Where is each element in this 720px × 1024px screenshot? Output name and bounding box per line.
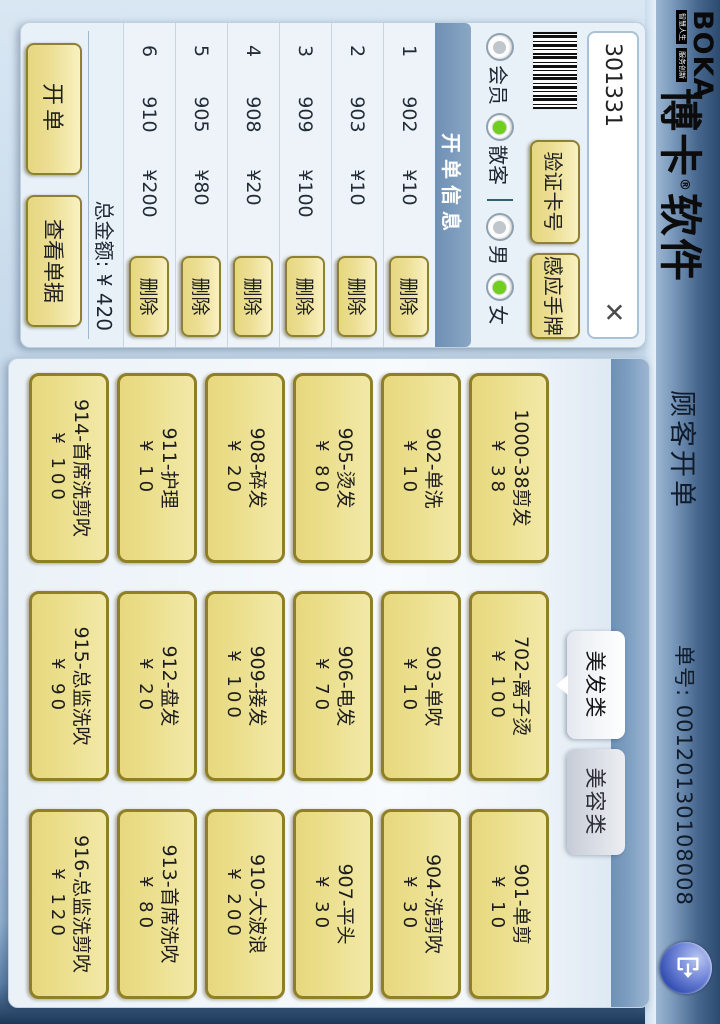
item-price: ¥200	[139, 169, 161, 256]
item-code: 909	[295, 96, 317, 169]
item-index: 4	[243, 45, 265, 96]
delete-item-button[interactable]: 删除	[390, 256, 430, 337]
service-button[interactable]: 1000-38剪发¥ 38	[469, 373, 549, 563]
delete-item-button[interactable]: 删除	[338, 256, 378, 337]
item-price: ¥10	[347, 169, 369, 256]
service-button[interactable]: 907-平头¥ 30	[293, 809, 373, 999]
service-button[interactable]: 912-盘发¥ 20	[117, 591, 197, 781]
item-code: 908	[243, 96, 265, 169]
exit-button[interactable]	[660, 942, 712, 994]
services-panel: 美发类 美容类 1000-38剪发¥ 38 702-离子烫¥ 100 901-单…	[8, 358, 650, 1008]
logo-tagline-right: 服务创新	[676, 48, 687, 82]
service-button[interactable]: 913-首席洗吹¥ 80	[117, 809, 197, 999]
bill-item-row: 6 910 ¥200 删除	[123, 23, 175, 347]
open-bill-button[interactable]: 开单	[26, 43, 82, 175]
bill-item-row: 5 905 ¥80 删除	[175, 23, 227, 347]
service-button[interactable]: 702-离子烫¥ 100	[469, 591, 549, 781]
bill-item-row: 2 903 ¥10 删除	[331, 23, 383, 347]
radio-female-circle[interactable]	[486, 273, 514, 301]
item-code: 905	[191, 96, 213, 169]
delete-item-button[interactable]: 删除	[286, 256, 326, 337]
item-price: ¥80	[191, 169, 213, 256]
radio-male[interactable]: 男	[486, 213, 515, 265]
item-index: 3	[295, 45, 317, 96]
logo-tagline-left: 智慧人生	[676, 10, 687, 44]
item-code: 902	[399, 96, 421, 169]
sense-handtag-button[interactable]: 感应手牌	[530, 253, 580, 339]
brand-title: 博卡®软件	[652, 88, 714, 283]
total-amount: 总金额: ¥ 420	[91, 23, 121, 331]
radio-male-circle[interactable]	[486, 213, 514, 241]
item-index: 1	[399, 45, 421, 96]
tab-beauty-category[interactable]: 美容类	[567, 749, 625, 855]
radio-member[interactable]: 会员	[486, 33, 515, 105]
service-button[interactable]: 904-洗剪吹¥ 30	[381, 809, 461, 999]
card-number-value: 301331	[601, 43, 626, 297]
verify-card-button[interactable]: 验证卡号	[530, 140, 580, 244]
item-price: ¥100	[295, 169, 317, 256]
item-price: ¥20	[243, 169, 265, 256]
radio-female[interactable]: 女	[486, 273, 515, 325]
radio-member-circle[interactable]	[486, 33, 514, 61]
service-button[interactable]: 902-单洗¥ 10	[381, 373, 461, 563]
service-button[interactable]: 903-单吹¥ 10	[381, 591, 461, 781]
delete-item-button[interactable]: 删除	[234, 256, 274, 337]
service-button[interactable]: 911-护理¥ 10	[117, 373, 197, 563]
app-root: BOKA 智慧人生 服务创新 博卡®软件 顾客开单 单号: 0012013010…	[0, 0, 720, 1024]
bill-item-row: 1 902 ¥10 删除	[383, 23, 435, 347]
service-button[interactable]: 901-单剪¥ 10	[469, 809, 549, 999]
service-button[interactable]: 915-总监洗吹¥ 90	[29, 591, 109, 781]
order-number: 单号: 00120130108008	[670, 645, 700, 906]
title-bar: BOKA 智慧人生 服务创新 博卡®软件 顾客开单 单号: 0012013010…	[656, 0, 720, 1024]
bill-item-list: 1 902 ¥10 删除 2 903 ¥10 删除 3 909 ¥100 删除 …	[123, 23, 435, 347]
exit-door-icon	[670, 954, 702, 982]
service-button[interactable]: 916-总监洗剪吹¥ 120	[29, 809, 109, 999]
item-code: 910	[139, 96, 161, 169]
page-title: 顾客开单	[665, 390, 704, 510]
service-button-grid: 1000-38剪发¥ 38 702-离子烫¥ 100 901-单剪¥ 10 90…	[13, 373, 549, 1003]
service-button[interactable]: 905-烫发¥ 80	[293, 373, 373, 563]
barcode-icon	[532, 31, 578, 110]
item-price: ¥10	[399, 169, 421, 256]
registered-mark: ®	[676, 178, 691, 193]
radio-walkin[interactable]: 散客	[486, 113, 515, 185]
panel-divider	[88, 31, 89, 339]
card-number-input[interactable]: 301331 ✕	[587, 31, 639, 339]
bill-item-row: 3 909 ¥100 删除	[279, 23, 331, 347]
billing-panel: 301331 ✕ 验证卡号 感应手牌 会员 散客 男 女	[20, 22, 646, 348]
bill-info-header: 开单信息	[435, 23, 471, 347]
service-button[interactable]: 909-接发¥ 100	[205, 591, 285, 781]
service-button[interactable]: 906-电发¥ 70	[293, 591, 373, 781]
radio-group-divider	[487, 199, 513, 201]
service-button[interactable]: 914-首席洗剪吹¥ 100	[29, 373, 109, 563]
clear-input-icon[interactable]: ✕	[598, 297, 628, 327]
item-index: 6	[139, 45, 161, 96]
delete-item-button[interactable]: 删除	[130, 256, 170, 337]
view-bills-button[interactable]: 查看单据	[26, 195, 82, 327]
item-index: 5	[191, 45, 213, 96]
service-button[interactable]: 908-碎发¥ 20	[205, 373, 285, 563]
item-code: 903	[347, 96, 369, 169]
delete-item-button[interactable]: 删除	[182, 256, 222, 337]
item-index: 2	[347, 45, 369, 96]
radio-walkin-circle[interactable]	[486, 113, 514, 141]
tab-hair-category[interactable]: 美发类	[567, 631, 625, 739]
service-button[interactable]: 910-大波浪¥ 200	[205, 809, 285, 999]
bill-item-row: 4 908 ¥20 删除	[227, 23, 279, 347]
